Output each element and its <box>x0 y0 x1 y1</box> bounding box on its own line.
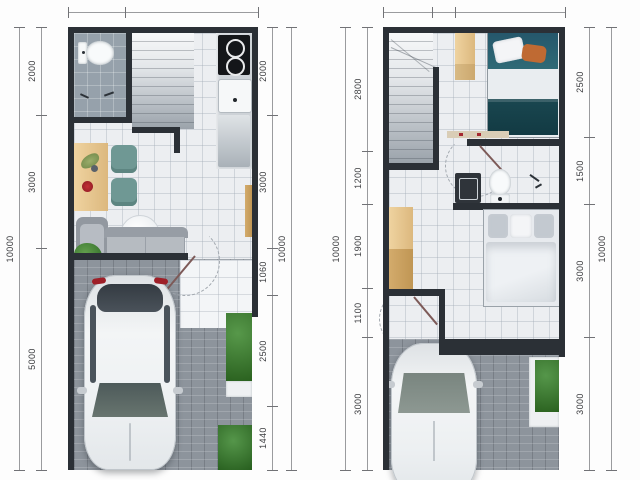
toilet <box>78 41 116 65</box>
dimension-label: 1100 <box>353 302 363 323</box>
dimension-label: 2000 <box>27 60 37 82</box>
wardrobe-lower <box>389 249 413 291</box>
car-below <box>391 343 477 480</box>
car-side-window <box>90 305 96 383</box>
tv-console <box>245 185 252 237</box>
kitchen-sink <box>218 79 252 113</box>
bed-blanket-teal <box>488 99 558 135</box>
dimension-line <box>383 12 565 13</box>
staircase <box>132 33 194 129</box>
car-mirror <box>77 387 87 394</box>
dimension-label: 10000 <box>597 235 607 262</box>
dimension-label: 3000 <box>575 393 585 415</box>
dimension-label: 3000 <box>27 171 37 193</box>
dimension-tick <box>286 470 297 471</box>
dimension-tick <box>606 27 617 28</box>
dim-top-upper: 10905102400 <box>383 1 565 13</box>
dimension-label: 10000 <box>331 235 341 262</box>
dimension-line <box>68 12 258 13</box>
table-plant-sprig <box>78 151 101 171</box>
winder-line <box>391 39 430 72</box>
back-wall <box>383 27 565 33</box>
car-mirror <box>173 387 183 394</box>
dimension-label: 2500 <box>575 72 585 94</box>
bed-duvet <box>486 242 556 302</box>
hall-wall-stub <box>439 289 445 345</box>
dimension-label: 3000 <box>353 393 363 415</box>
dim-top-ground: 12002800 <box>68 1 258 13</box>
upper-toilet <box>489 169 511 205</box>
planter-hedge <box>535 360 559 412</box>
dimension-tick <box>68 7 69 18</box>
planter-hedge <box>226 313 252 381</box>
dim-left-inner-upper: 28001200190011003000 <box>348 27 368 470</box>
dimension-tick <box>125 7 126 18</box>
washbasin <box>459 178 478 200</box>
bed-orange-accent <box>521 43 547 63</box>
dimension-label: 2500 <box>258 340 268 362</box>
table-flower-red <box>82 181 93 192</box>
dimension-tick <box>36 115 47 116</box>
dimension-tick <box>432 7 433 18</box>
ground-floor-plan <box>68 27 258 470</box>
dim-right-inner-ground: 20003000106025001440 <box>253 27 273 470</box>
dimension-label: 3000 <box>258 171 268 193</box>
dimension-label: 1500 <box>575 160 585 182</box>
dimension-line <box>291 27 292 470</box>
bed-pillow <box>510 214 532 238</box>
car <box>84 275 176 470</box>
dimension-label: 10000 <box>277 235 287 262</box>
dimension-tick <box>36 248 47 249</box>
car-side-window <box>164 305 170 383</box>
wardrobe <box>389 207 413 249</box>
car-hood-crease <box>433 421 435 461</box>
stove-burner <box>226 57 245 76</box>
master-bed <box>483 209 561 307</box>
dimension-line <box>589 27 590 470</box>
dimension-tick <box>362 288 373 289</box>
side-wall-left <box>68 27 74 470</box>
bed-pillow <box>534 214 554 238</box>
dimension-tick <box>362 27 373 28</box>
side-wall-right <box>559 27 565 357</box>
car-mirror <box>473 381 483 388</box>
side-wall-left <box>383 27 389 470</box>
car-taillight <box>154 277 169 285</box>
bed-pillow <box>488 214 508 238</box>
dimension-tick <box>362 204 373 205</box>
table-vase <box>91 165 98 172</box>
dim-left-inner-ground: 200030005000 <box>22 27 42 470</box>
dimension-tick <box>362 470 373 471</box>
dimension-tick <box>362 151 373 152</box>
dimension-line <box>19 27 20 470</box>
upper-staircase <box>389 33 433 163</box>
dim-right-inner-upper: 2500150030003000 <box>570 27 590 470</box>
dimension-tick <box>36 470 47 471</box>
dining-chair <box>111 145 137 173</box>
car-windshield <box>398 373 470 413</box>
car-hood-crease <box>129 423 131 461</box>
stair-wall-stub <box>174 127 180 153</box>
car-rear-glass <box>97 284 163 312</box>
dim-left-outer-upper: 10000 <box>326 27 346 470</box>
floor-plan-sheet: 12002800 10000 200030005000 200030001060… <box>0 0 640 480</box>
car-windshield <box>92 383 168 417</box>
dimension-tick <box>36 27 47 28</box>
dim-right-outer-upper: 10000 <box>592 27 612 470</box>
stair-side-wall <box>433 67 439 170</box>
dimension-tick <box>565 7 566 18</box>
dim-left-outer-ground: 10000 <box>0 27 20 470</box>
kitchen-cabinet <box>218 115 250 167</box>
balcony-slab-edge <box>439 339 565 355</box>
dimension-label: 10000 <box>5 235 15 262</box>
washbasin-cabinet <box>455 173 481 203</box>
shelf-red-item <box>459 133 463 136</box>
planter-hedge <box>218 425 252 470</box>
dimension-label: 1200 <box>353 167 363 189</box>
wardrobe <box>455 32 475 80</box>
dim-right-outer-ground: 10000 <box>272 27 292 470</box>
toilet-flush-dot <box>82 51 85 54</box>
stair-bottom-wall <box>383 163 439 170</box>
dimension-label: 1900 <box>353 235 363 257</box>
dimension-tick <box>286 27 297 28</box>
dining-chair <box>111 178 137 206</box>
dimension-label: 3000 <box>575 260 585 282</box>
toilet-bowl <box>489 169 511 195</box>
planter-box <box>226 381 252 397</box>
dining-table <box>74 143 108 211</box>
toilet-flush-dot <box>498 197 502 201</box>
sink-drain <box>233 98 237 102</box>
dimension-label: 1060 <box>258 261 268 283</box>
back-wall <box>68 27 258 33</box>
upper-floor-plan <box>383 27 565 470</box>
dimension-label: 2000 <box>258 60 268 82</box>
dimension-tick <box>362 337 373 338</box>
dimension-line <box>367 27 368 470</box>
dimension-label: 5000 <box>27 348 37 370</box>
dimension-line <box>345 27 346 470</box>
dimension-tick <box>383 7 384 18</box>
car-taillight <box>92 277 107 285</box>
stair-wall <box>132 127 180 133</box>
toilet-bowl <box>86 41 114 65</box>
dimension-label: 1440 <box>258 427 268 449</box>
dimension-label: 2800 <box>353 78 363 100</box>
dimension-line <box>611 27 612 470</box>
single-bed <box>487 32 561 138</box>
dimension-tick <box>258 7 259 18</box>
dimension-tick <box>606 470 617 471</box>
dimension-tick <box>455 7 456 18</box>
stove-burner <box>226 39 245 58</box>
kitchen-stove <box>218 35 250 75</box>
